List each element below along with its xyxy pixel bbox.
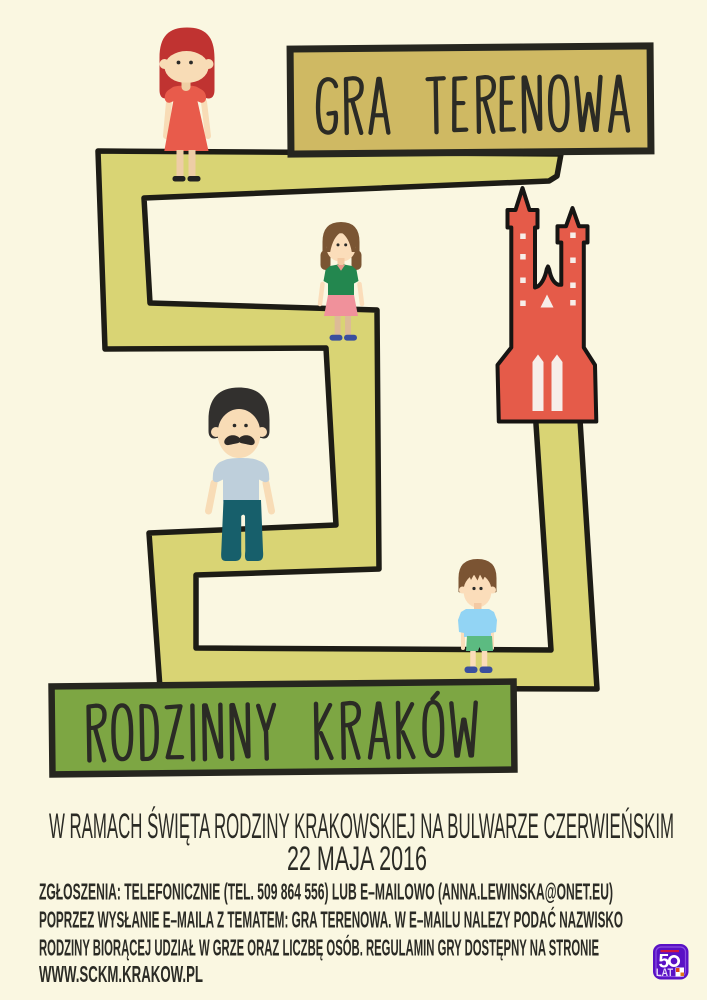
svg-text:22 MAJA 2016: 22 MAJA 2016 [287, 840, 427, 878]
svg-text:ZGŁOSZENIA: TELEFONICZNIE (TEL: ZGŁOSZENIA: TELEFONICZNIE (TEL. 509 864 … [39, 879, 613, 905]
svg-text:RODZINY BIORĄCEJ UDZIAŁ W GRZE: RODZINY BIORĄCEJ UDZIAŁ W GRZE ORAZ LICZ… [39, 934, 599, 961]
svg-text:WWW.SCKM.KRAKOW.PL: WWW.SCKM.KRAKOW.PL [39, 961, 203, 987]
svg-text:POPRZEZ WYSŁANIE E–MAILA Z TEM: POPRZEZ WYSŁANIE E–MAILA Z TEMATEM: GRA … [39, 906, 623, 933]
svg-text:LAT: LAT [656, 967, 673, 979]
